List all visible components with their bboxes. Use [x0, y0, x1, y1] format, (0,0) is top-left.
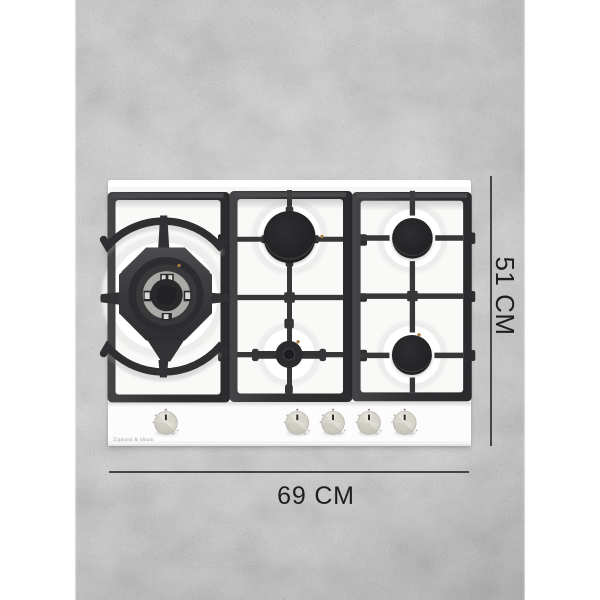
svg-text:Zigmund & Shtain: Zigmund & Shtain — [113, 438, 154, 443]
